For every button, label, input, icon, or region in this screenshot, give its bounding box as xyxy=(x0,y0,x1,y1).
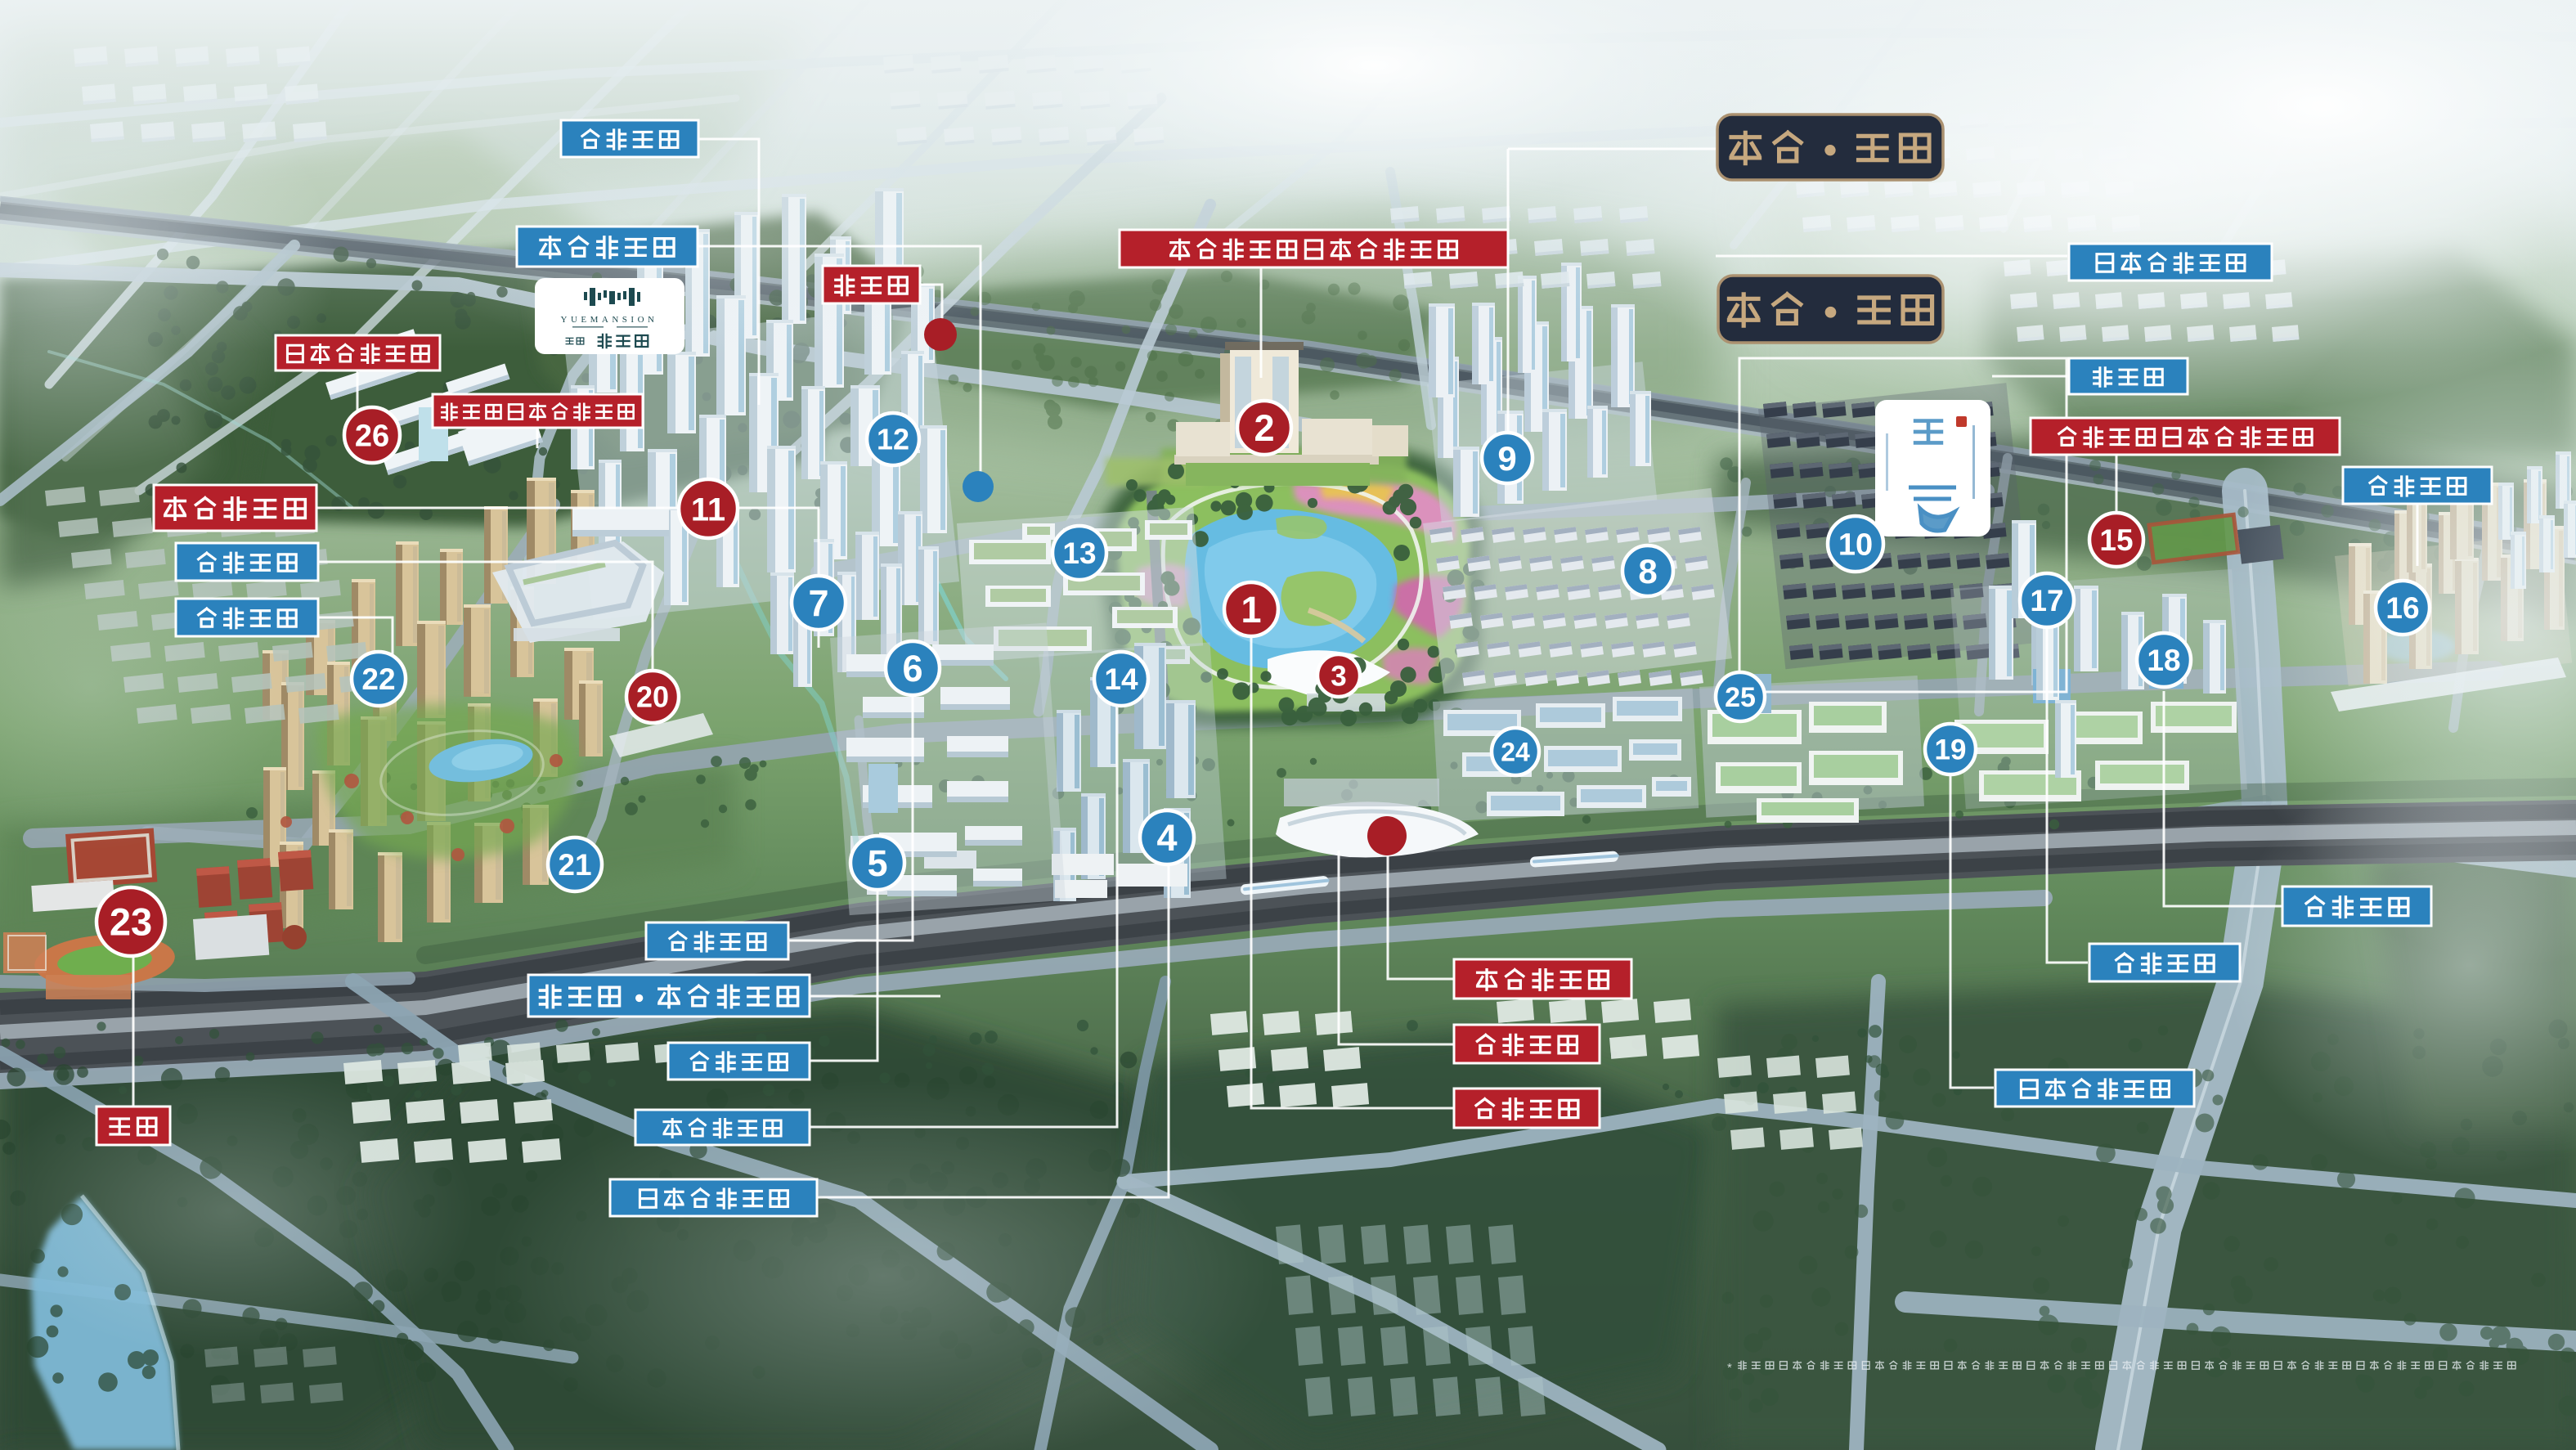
svg-text:25: 25 xyxy=(1725,682,1756,713)
svg-text:12: 12 xyxy=(877,423,909,456)
svg-text:5: 5 xyxy=(867,842,887,884)
svg-text:23: 23 xyxy=(110,900,152,944)
svg-text:9: 9 xyxy=(1497,439,1516,478)
svg-text:21: 21 xyxy=(558,848,591,882)
svg-text:15: 15 xyxy=(2099,523,2133,557)
svg-text:YUEMANSION: YUEMANSION xyxy=(561,315,658,325)
svg-text:*: * xyxy=(1727,1361,1732,1375)
svg-text:20: 20 xyxy=(636,680,669,714)
svg-text:14: 14 xyxy=(1104,662,1138,696)
svg-text:18: 18 xyxy=(2147,644,2180,677)
svg-text:6: 6 xyxy=(902,648,922,689)
svg-text:3: 3 xyxy=(1331,660,1346,692)
svg-text:1: 1 xyxy=(1241,589,1261,631)
svg-text:11: 11 xyxy=(691,492,725,527)
svg-text:2: 2 xyxy=(1254,407,1274,449)
svg-text:7: 7 xyxy=(808,582,828,624)
svg-text:22: 22 xyxy=(361,662,395,696)
svg-text:13: 13 xyxy=(1062,536,1096,570)
svg-text:10: 10 xyxy=(1838,528,1873,563)
svg-text:26: 26 xyxy=(355,420,389,454)
svg-text:16: 16 xyxy=(2385,591,2419,625)
svg-text:19: 19 xyxy=(1935,734,1967,765)
svg-text:4: 4 xyxy=(1156,817,1177,859)
svg-text:17: 17 xyxy=(2030,584,2063,617)
svg-text:8: 8 xyxy=(1638,552,1657,590)
svg-text:24: 24 xyxy=(1501,738,1530,767)
